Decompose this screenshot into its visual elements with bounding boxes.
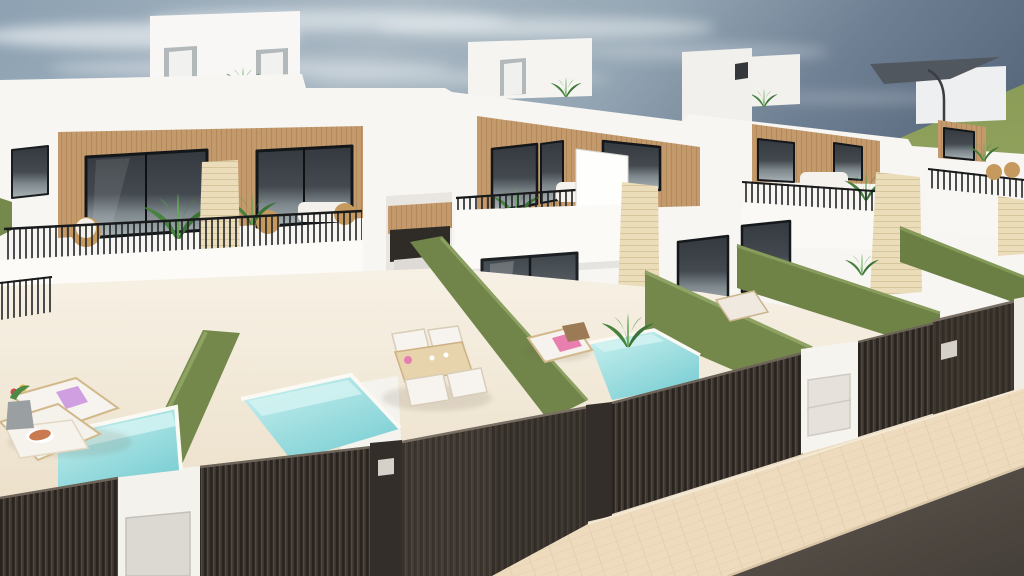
stone-clad-wall: [998, 196, 1024, 256]
roof-box-4: [682, 48, 752, 124]
letterbox-pillar: [801, 341, 858, 454]
upper-window: [758, 139, 794, 182]
roof-slit-window: [735, 62, 748, 80]
dining-chair: [447, 368, 487, 398]
plate: [444, 353, 449, 358]
upper-window: [944, 128, 974, 160]
plate: [430, 356, 435, 361]
intercom-plate: [378, 458, 394, 476]
dining-chair: [405, 374, 449, 406]
roof-door: [504, 62, 522, 96]
villa-render-svg: [0, 0, 1024, 576]
flower-centerpiece: [404, 356, 412, 364]
roof-box-2: [468, 38, 592, 100]
slatted-fence: [200, 446, 372, 576]
wicker-chair: [1004, 162, 1020, 178]
render-viewport: [0, 0, 1024, 576]
side-window: [12, 146, 48, 198]
gate-slats: [402, 424, 492, 576]
wicker-chair: [986, 164, 1002, 180]
meter-panel: [126, 512, 190, 576]
gate-post: [586, 402, 612, 522]
